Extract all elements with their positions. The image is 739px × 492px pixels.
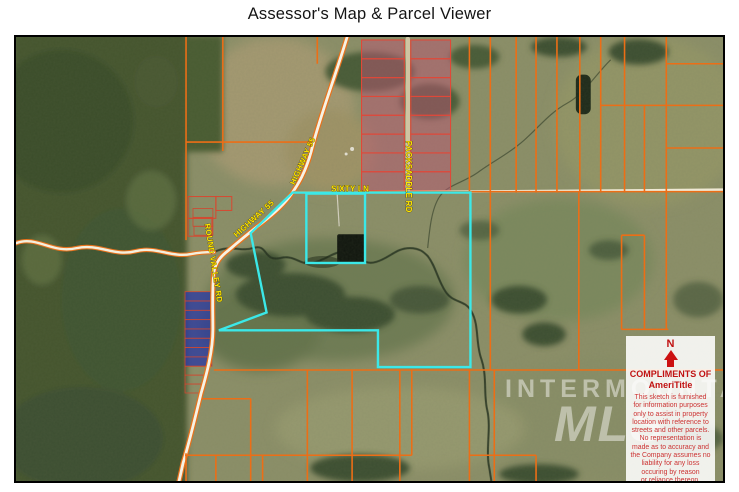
disclaimer-line: the Company assumes no: [628, 452, 713, 460]
ameri-title-text: AmeriTitle: [628, 380, 713, 391]
disclaimer-line: This sketch is furnished: [628, 394, 713, 402]
compliments-of-text: COMPLIMENTS OF: [628, 369, 713, 380]
map-canvas[interactable]: HIGHWAY 55 HIGHWAY 55 SIXTY LN PACKSADDL…: [14, 35, 725, 483]
disclaimer-line: only to assist in property: [628, 411, 713, 419]
disclaimer-line: liability for any loss: [628, 460, 713, 468]
disclaimer-line: No representation is: [628, 435, 713, 443]
disclaimer-line: streets and other parcels.: [628, 427, 713, 435]
disclaimer-line: or reliance thereon.: [628, 477, 713, 483]
disclaimer-line: made as to accuracy and: [628, 444, 713, 452]
aerial-map-image: HIGHWAY 55 HIGHWAY 55 SIXTY LN PACKSADDL…: [16, 37, 723, 481]
page-title: Assessor's Map & Parcel Viewer: [0, 5, 739, 24]
disclaimer-line: occuring by reason: [628, 469, 713, 477]
north-arrow-icon: [664, 350, 678, 360]
road-label-sixty-ln: SIXTY LN: [331, 185, 369, 194]
compliments-info-box: N COMPLIMENTS OF AmeriTitle This sketch …: [626, 336, 715, 482]
assessor-map-page: Assessor's Map & Parcel Viewer: [0, 0, 739, 492]
disclaimer-text: This sketch is furnished for information…: [628, 394, 713, 483]
road-label-packsaddle-rd: PACKSADDLE RD: [404, 141, 413, 213]
north-label: N: [628, 339, 713, 350]
disclaimer-line: location with reference to: [628, 419, 713, 427]
disclaimer-line: for information purposes: [628, 402, 713, 410]
north-arrow-stem: [667, 360, 674, 367]
